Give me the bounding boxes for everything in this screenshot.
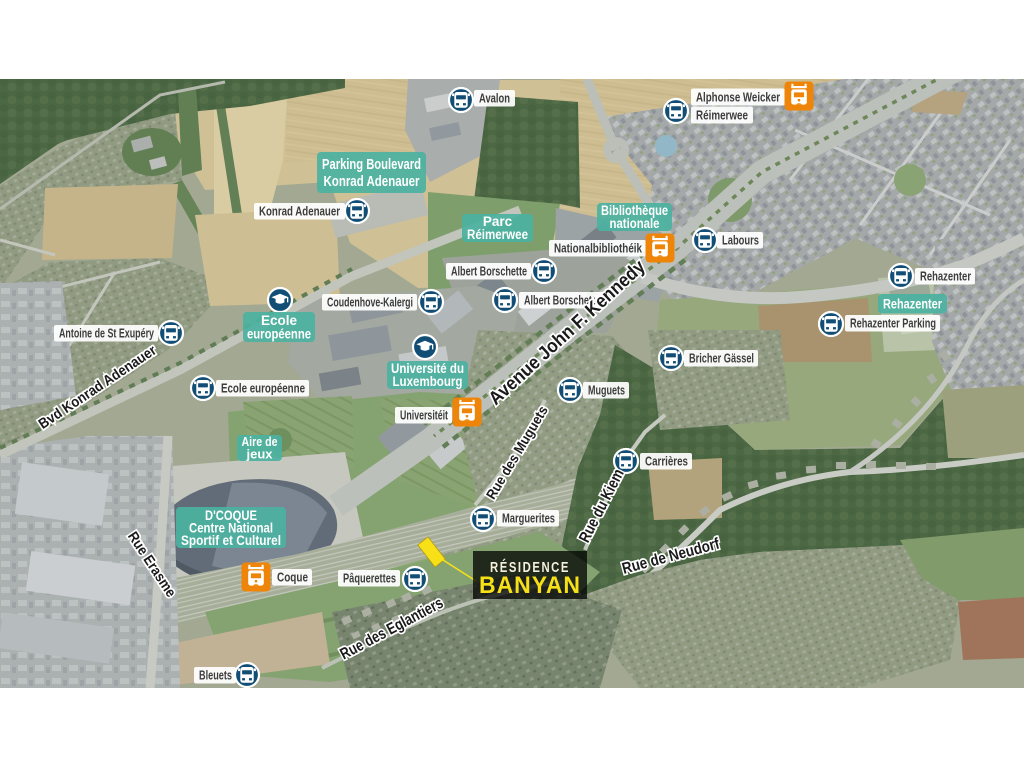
svg-text:Ecole européenne: Ecole européenne <box>221 381 305 396</box>
svg-text:Labours: Labours <box>722 233 759 248</box>
svg-text:Bleuets: Bleuets <box>199 668 232 683</box>
svg-text:Alphonse Weicker: Alphonse Weicker <box>696 90 780 105</box>
svg-text:européenne: européenne <box>247 327 311 342</box>
svg-text:Antoine de St Exupéry: Antoine de St Exupéry <box>59 326 155 341</box>
svg-text:BANYAN: BANYAN <box>479 572 581 599</box>
svg-text:Luxembourg: Luxembourg <box>393 374 463 389</box>
svg-text:jeux: jeux <box>245 447 273 462</box>
svg-text:Rehazenter: Rehazenter <box>883 297 943 312</box>
svg-text:Konrad Adenauer: Konrad Adenauer <box>259 204 340 219</box>
svg-text:Rehazenter: Rehazenter <box>920 269 971 284</box>
svg-text:Marguerites: Marguerites <box>502 511 555 526</box>
svg-text:Bricher Gässel: Bricher Gässel <box>689 351 754 366</box>
svg-text:Konrad Adenauer: Konrad Adenauer <box>324 174 420 190</box>
svg-text:Avalon: Avalon <box>479 91 510 106</box>
svg-text:Albert Borschette: Albert Borschette <box>451 264 527 279</box>
svg-text:Réimerwee: Réimerwee <box>467 227 528 242</box>
svg-text:Rehazenter Parking: Rehazenter Parking <box>850 316 936 331</box>
svg-text:Réimerwee: Réimerwee <box>696 108 748 123</box>
svg-text:Muguets: Muguets <box>588 383 625 398</box>
svg-text:Coque: Coque <box>277 570 308 585</box>
svg-text:Parking Boulevard: Parking Boulevard <box>322 157 421 173</box>
svg-text:Sportif et Culturel: Sportif et Culturel <box>181 533 281 548</box>
svg-text:Universitéit: Universitéit <box>400 408 448 423</box>
svg-text:Carrières: Carrières <box>645 454 688 469</box>
svg-text:Pâquerettes: Pâquerettes <box>343 571 396 586</box>
svg-text:Coudenhove-Kalergi: Coudenhove-Kalergi <box>327 295 413 310</box>
svg-text:nationale: nationale <box>610 216 660 231</box>
svg-text:Nationalbibliothéik: Nationalbibliothéik <box>554 241 643 256</box>
